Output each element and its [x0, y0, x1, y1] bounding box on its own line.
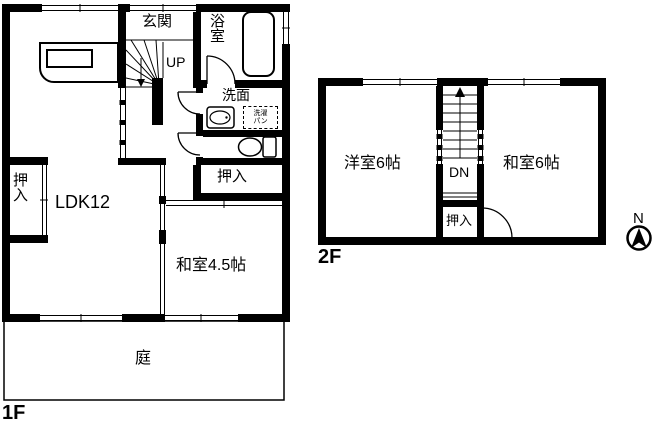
label-entrance: 玄関 — [142, 14, 172, 31]
kitchen-counter — [40, 43, 118, 82]
label-laundry-pan-line1: 洗濯 — [254, 110, 268, 118]
bathroom-door — [207, 56, 235, 84]
label-western-room-2f: 洋室6帖 — [344, 155, 401, 173]
label-ldk: LDK12 — [55, 193, 110, 213]
label-garden: 庭 — [135, 350, 151, 368]
label-north: N — [633, 211, 644, 228]
stairs-2f — [443, 87, 477, 197]
label-stairs-up: UP — [166, 55, 185, 70]
floorplan-canvas: 玄関 浴室 UP 洗面 洗濯 パン 押入 押入 LDK12 和室4.5帖 庭 1… — [0, 0, 655, 426]
laundry-pan-box: 洗濯 パン — [243, 106, 278, 129]
washroom-door — [178, 92, 200, 114]
label-stairs-down: DN — [449, 165, 469, 180]
floorplan-drawing — [0, 0, 655, 426]
label-japanese-room-1f: 和室4.5帖 — [176, 257, 246, 275]
stairs-1f — [126, 40, 159, 87]
north-arrow-icon — [628, 227, 651, 250]
label-closet-2f: 押入 — [446, 214, 472, 228]
label-laundry-pan-line2: パン — [253, 118, 267, 126]
bathtub — [243, 12, 274, 76]
label-closet-right: 押入 — [217, 169, 247, 186]
floor2-room-door — [482, 208, 512, 238]
label-japanese-room-2f: 和室6帖 — [503, 155, 560, 173]
label-washroom: 洗面 — [222, 88, 250, 103]
toilet-door — [178, 133, 200, 155]
label-floor1: 1F — [2, 402, 25, 424]
washroom-sink — [207, 107, 234, 128]
label-floor2: 2F — [318, 246, 341, 268]
label-bathroom: 浴室 — [209, 13, 224, 43]
label-closet-left: 押入 — [12, 172, 27, 202]
toilet — [239, 137, 277, 157]
